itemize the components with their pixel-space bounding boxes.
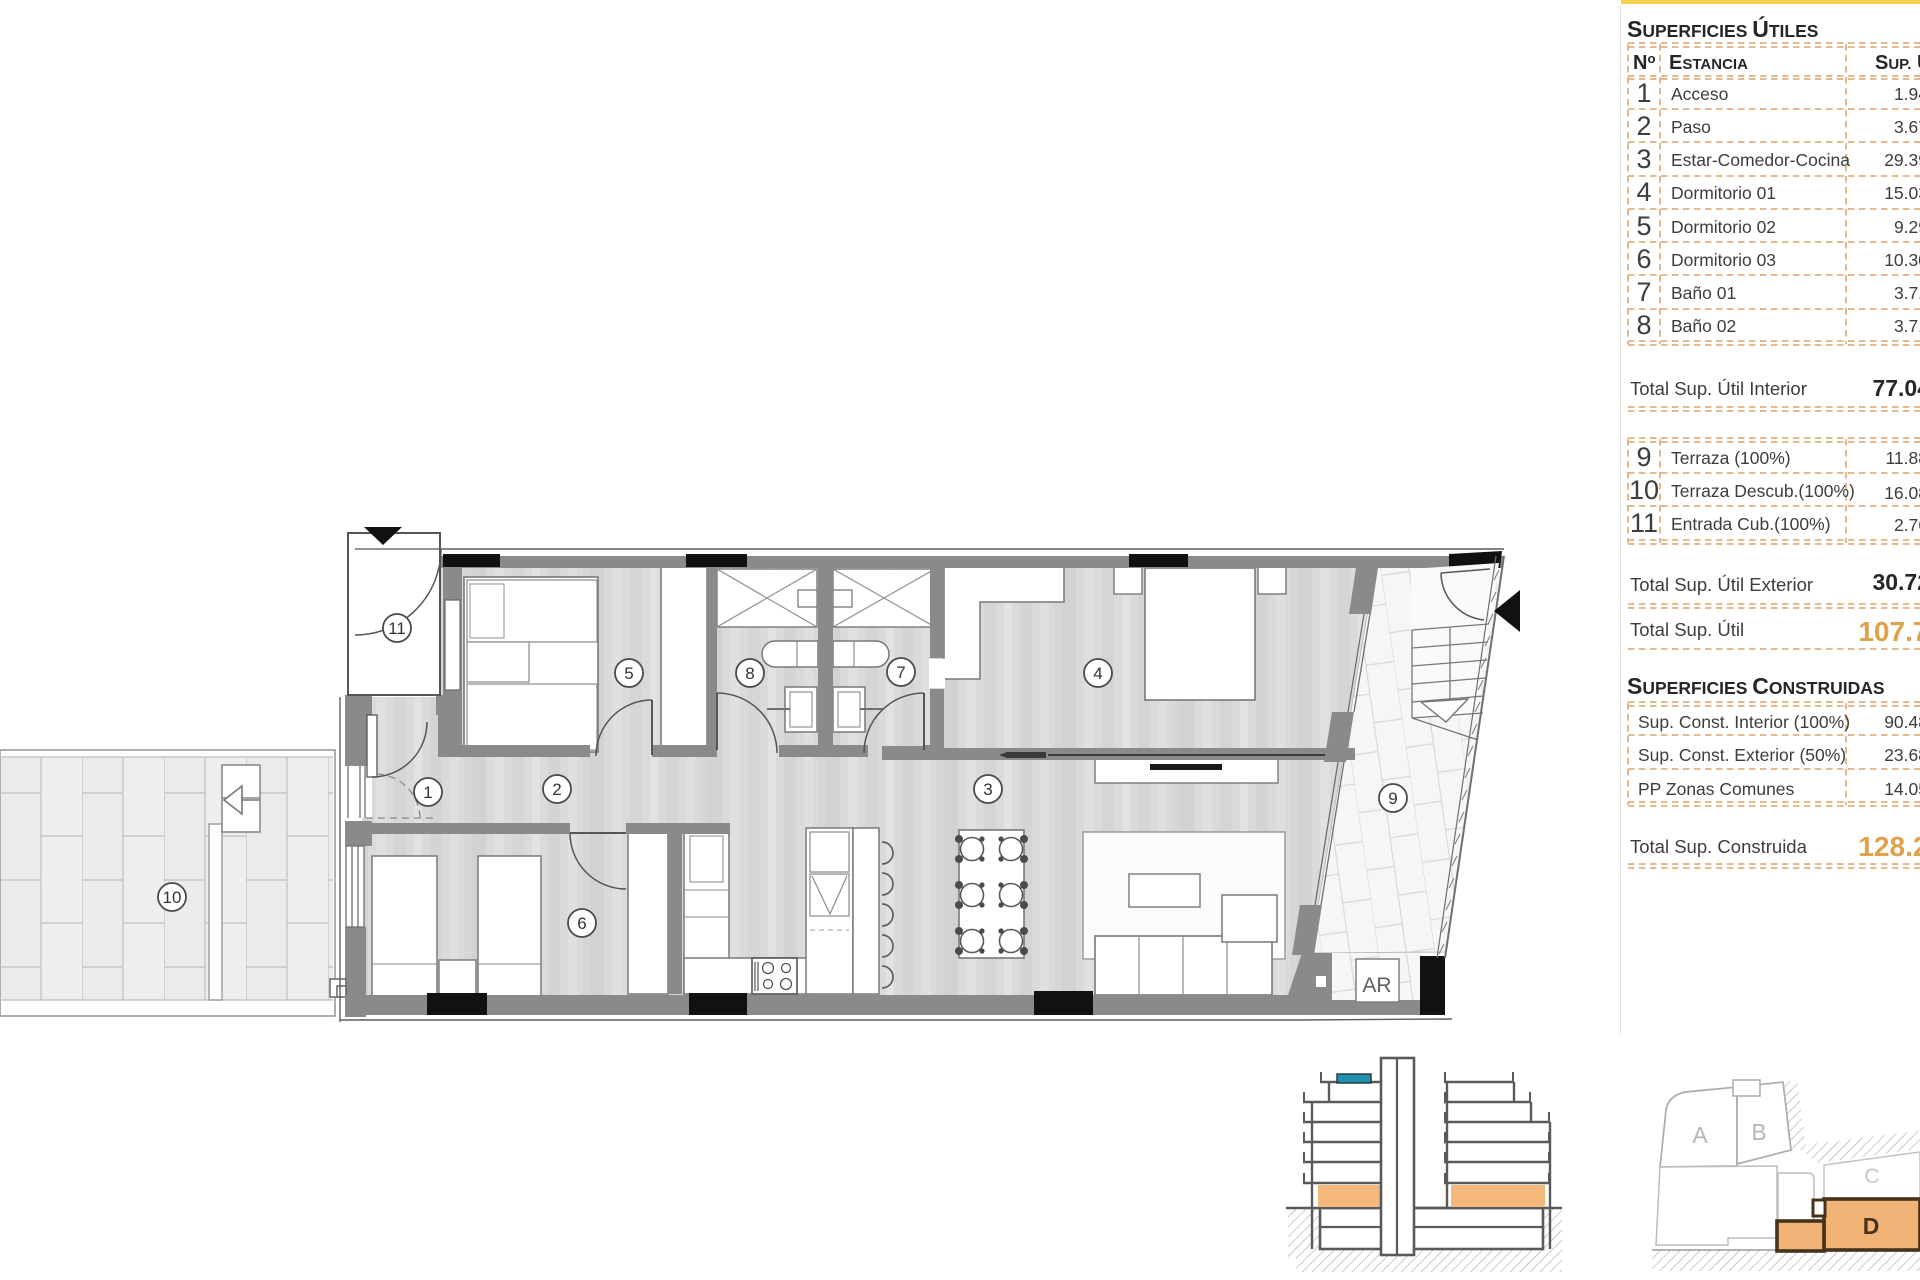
svg-text:3: 3 <box>983 780 992 799</box>
svg-text:90.48: 90.48 <box>1884 712 1920 732</box>
svg-text:Entrada Cub.(100%): Entrada Cub.(100%) <box>1671 514 1831 534</box>
svg-text:Paso: Paso <box>1671 117 1711 137</box>
svg-text:A: A <box>1692 1122 1708 1148</box>
svg-text:Terraza Descub.(100%): Terraza Descub.(100%) <box>1671 481 1855 501</box>
svg-text:10: 10 <box>1629 475 1659 505</box>
svg-text:No: No <box>1633 51 1655 74</box>
svg-text:AR: AR <box>1362 974 1391 997</box>
svg-text:5: 5 <box>624 664 633 683</box>
svg-text:14.05: 14.05 <box>1884 779 1920 799</box>
svg-text:3: 3 <box>1636 144 1651 174</box>
svg-text:Sup. Const. Exterior (50%): Sup. Const. Exterior (50%) <box>1638 745 1846 765</box>
svg-text:1: 1 <box>1636 78 1651 108</box>
svg-text:SUPERFICIES CONSTRUIDAS: SUPERFICIES CONSTRUIDAS <box>1627 673 1885 699</box>
svg-text:16.08: 16.08 <box>1884 483 1920 503</box>
svg-text:Acceso: Acceso <box>1671 84 1728 104</box>
svg-text:Dormitorio 02: Dormitorio 02 <box>1671 217 1776 237</box>
svg-text:Baño 01: Baño 01 <box>1671 283 1736 303</box>
svg-text:10.30: 10.30 <box>1884 250 1920 270</box>
svg-text:23.68: 23.68 <box>1884 745 1920 765</box>
svg-text:D: D <box>1863 1213 1880 1239</box>
svg-text:10: 10 <box>163 888 182 907</box>
svg-text:29.39: 29.39 <box>1884 150 1920 170</box>
svg-text:6: 6 <box>577 914 586 933</box>
svg-text:30.72: 30.72 <box>1872 569 1920 595</box>
svg-text:3.71: 3.71 <box>1894 283 1920 303</box>
svg-text:9: 9 <box>1636 442 1651 472</box>
svg-text:9: 9 <box>1388 789 1397 808</box>
svg-text:4: 4 <box>1093 664 1102 683</box>
svg-text:C: C <box>1864 1165 1879 1188</box>
svg-text:Total Sup. Útil Exterior: Total Sup. Útil Exterior <box>1630 574 1813 595</box>
svg-text:ESTANCIA: ESTANCIA <box>1669 52 1748 74</box>
svg-text:Sup. Const. Interior (100%): Sup. Const. Interior (100%) <box>1638 712 1850 732</box>
svg-text:SUPERFICIES ÚTILES: SUPERFICIES ÚTILES <box>1627 15 1818 42</box>
svg-text:7: 7 <box>896 663 905 682</box>
svg-text:3.71: 3.71 <box>1894 316 1920 336</box>
svg-text:1.94: 1.94 <box>1894 84 1920 104</box>
svg-text:Total Sup. Construida: Total Sup. Construida <box>1630 836 1808 857</box>
svg-text:5: 5 <box>1636 211 1651 241</box>
svg-text:128.26: 128.26 <box>1858 831 1920 862</box>
svg-text:PP Zonas Comunes: PP Zonas Comunes <box>1638 779 1795 799</box>
svg-text:Dormitorio 03: Dormitorio 03 <box>1671 250 1776 270</box>
svg-text:77.04: 77.04 <box>1872 375 1920 401</box>
svg-text:2: 2 <box>1636 111 1651 141</box>
svg-text:11.88: 11.88 <box>1886 448 1920 468</box>
svg-text:Baño 02: Baño 02 <box>1671 316 1736 336</box>
svg-text:6: 6 <box>1636 244 1651 274</box>
svg-text:2.76: 2.76 <box>1894 515 1920 535</box>
svg-text:SUP. Ú: SUP. Ú <box>1875 50 1920 74</box>
svg-text:4: 4 <box>1636 177 1651 207</box>
svg-text:Estar-Comedor-Cocina: Estar-Comedor-Cocina <box>1671 150 1850 170</box>
svg-text:Total Sup. Útil Interior: Total Sup. Útil Interior <box>1630 378 1807 399</box>
svg-text:7: 7 <box>1636 277 1651 307</box>
svg-text:Terraza (100%): Terraza (100%) <box>1671 448 1791 468</box>
svg-text:8: 8 <box>1636 310 1651 340</box>
svg-text:15.03: 15.03 <box>1884 183 1920 203</box>
svg-text:107.76: 107.76 <box>1858 616 1920 647</box>
svg-text:9.29: 9.29 <box>1894 217 1920 237</box>
svg-text:2: 2 <box>552 780 561 799</box>
svg-text:Total Sup. Útil: Total Sup. Útil <box>1630 619 1744 640</box>
svg-text:Dormitorio 01: Dormitorio 01 <box>1671 183 1776 203</box>
svg-text:11: 11 <box>1630 508 1658 538</box>
svg-text:3.67: 3.67 <box>1894 117 1920 137</box>
svg-text:1: 1 <box>423 783 432 802</box>
svg-text:11: 11 <box>388 619 406 638</box>
svg-text:B: B <box>1751 1119 1766 1145</box>
svg-text:8: 8 <box>745 664 754 683</box>
